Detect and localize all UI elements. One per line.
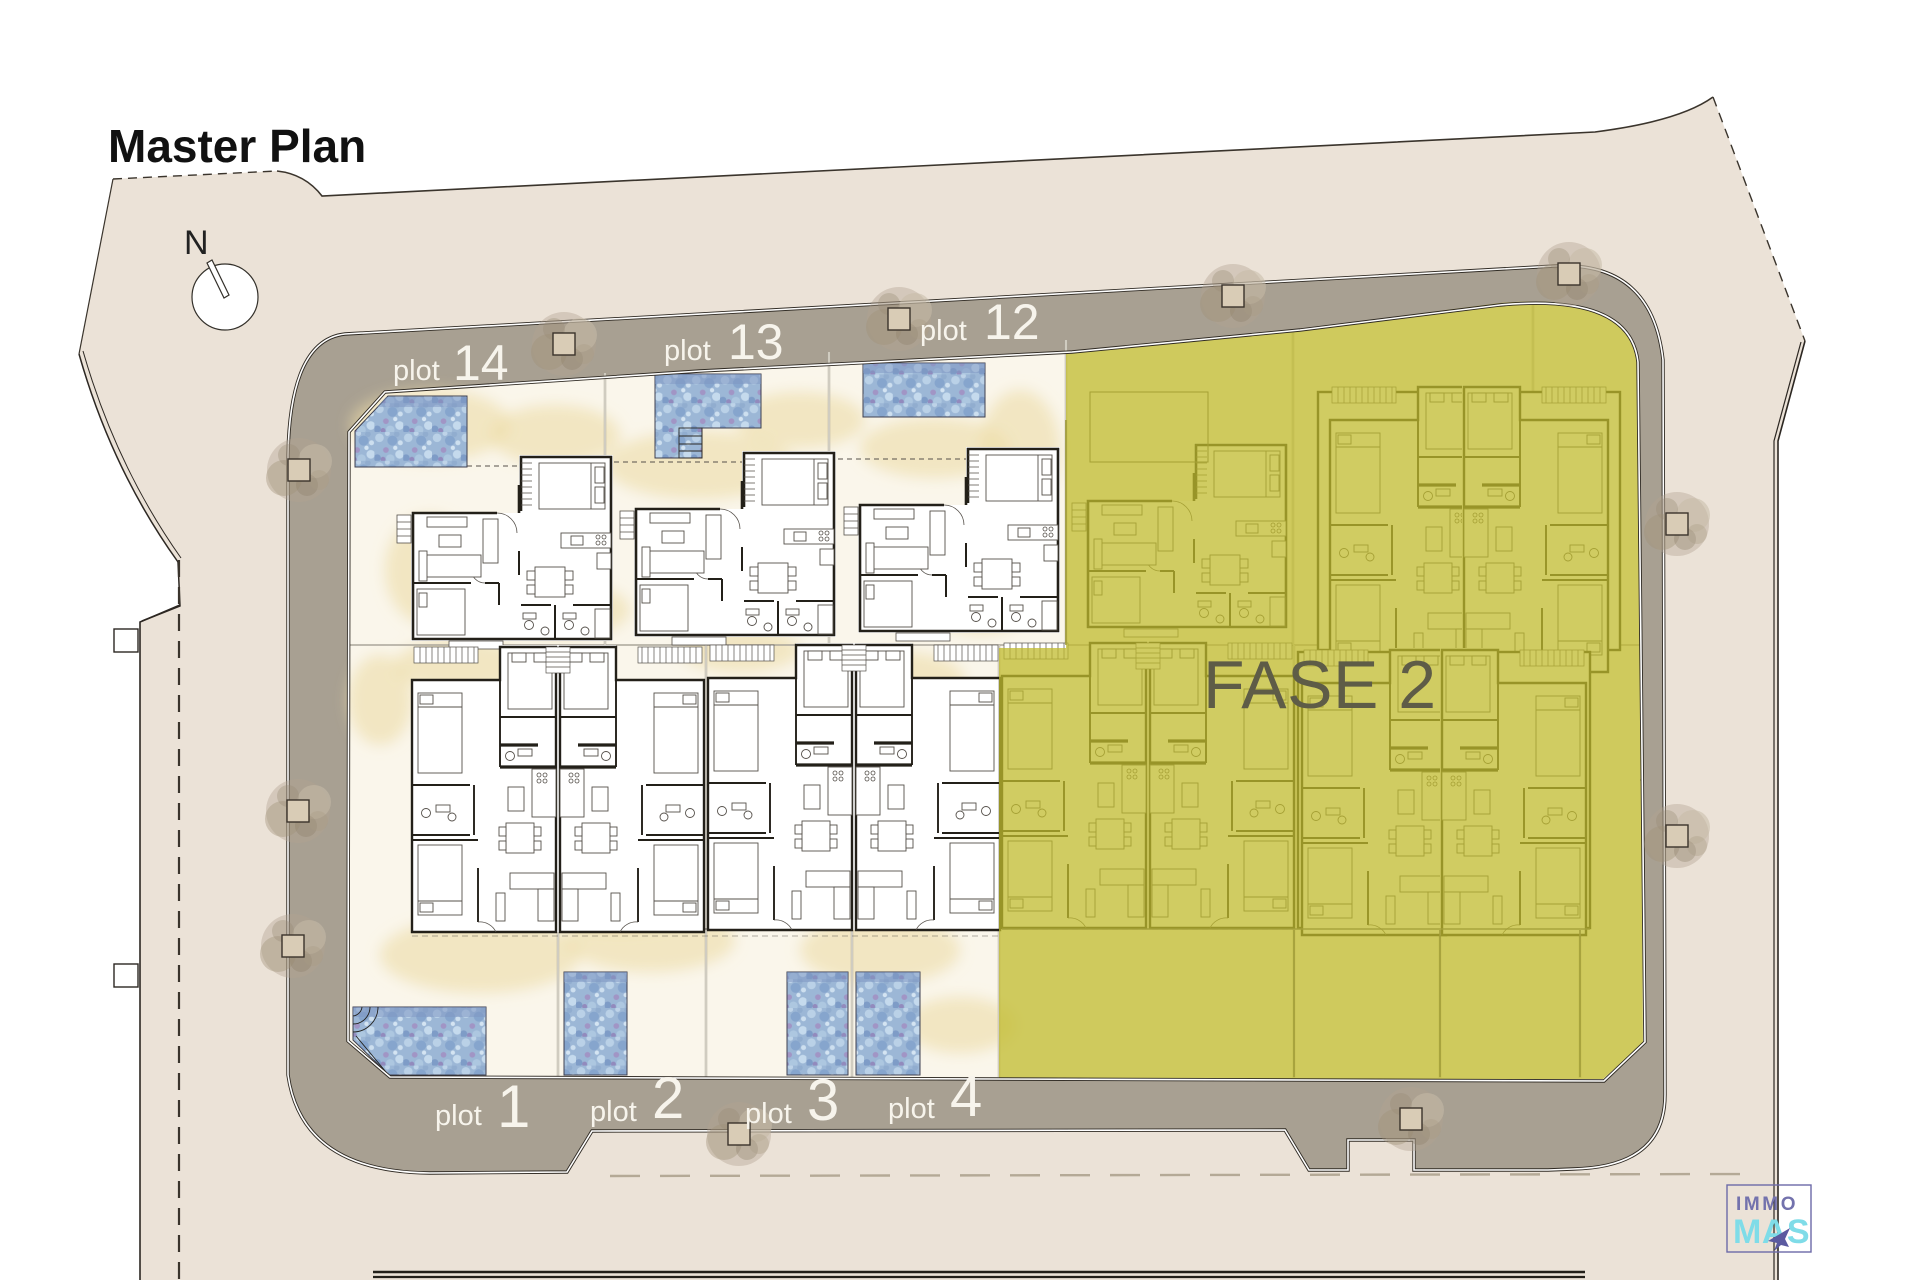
svg-text:Master Plan: Master Plan: [108, 120, 366, 172]
svg-text:MAS: MAS: [1733, 1213, 1810, 1251]
svg-text:plot: plot: [920, 315, 967, 347]
svg-text:FASE 2: FASE 2: [1203, 647, 1437, 723]
svg-text:2: 2: [652, 1066, 684, 1131]
svg-text:14: 14: [453, 335, 509, 391]
svg-text:13: 13: [728, 314, 784, 370]
svg-text:1: 1: [497, 1073, 530, 1140]
svg-text:plot: plot: [435, 1100, 482, 1132]
svg-text:plot: plot: [664, 335, 711, 367]
svg-text:plot: plot: [888, 1093, 935, 1125]
svg-text:12: 12: [984, 294, 1040, 350]
svg-text:N: N: [184, 224, 209, 262]
svg-text:plot: plot: [393, 355, 440, 387]
svg-text:4: 4: [950, 1064, 982, 1129]
svg-text:plot: plot: [590, 1096, 637, 1128]
svg-text:plot: plot: [745, 1098, 792, 1130]
svg-text:3: 3: [807, 1068, 839, 1133]
svg-text:IMMO: IMMO: [1736, 1194, 1798, 1215]
